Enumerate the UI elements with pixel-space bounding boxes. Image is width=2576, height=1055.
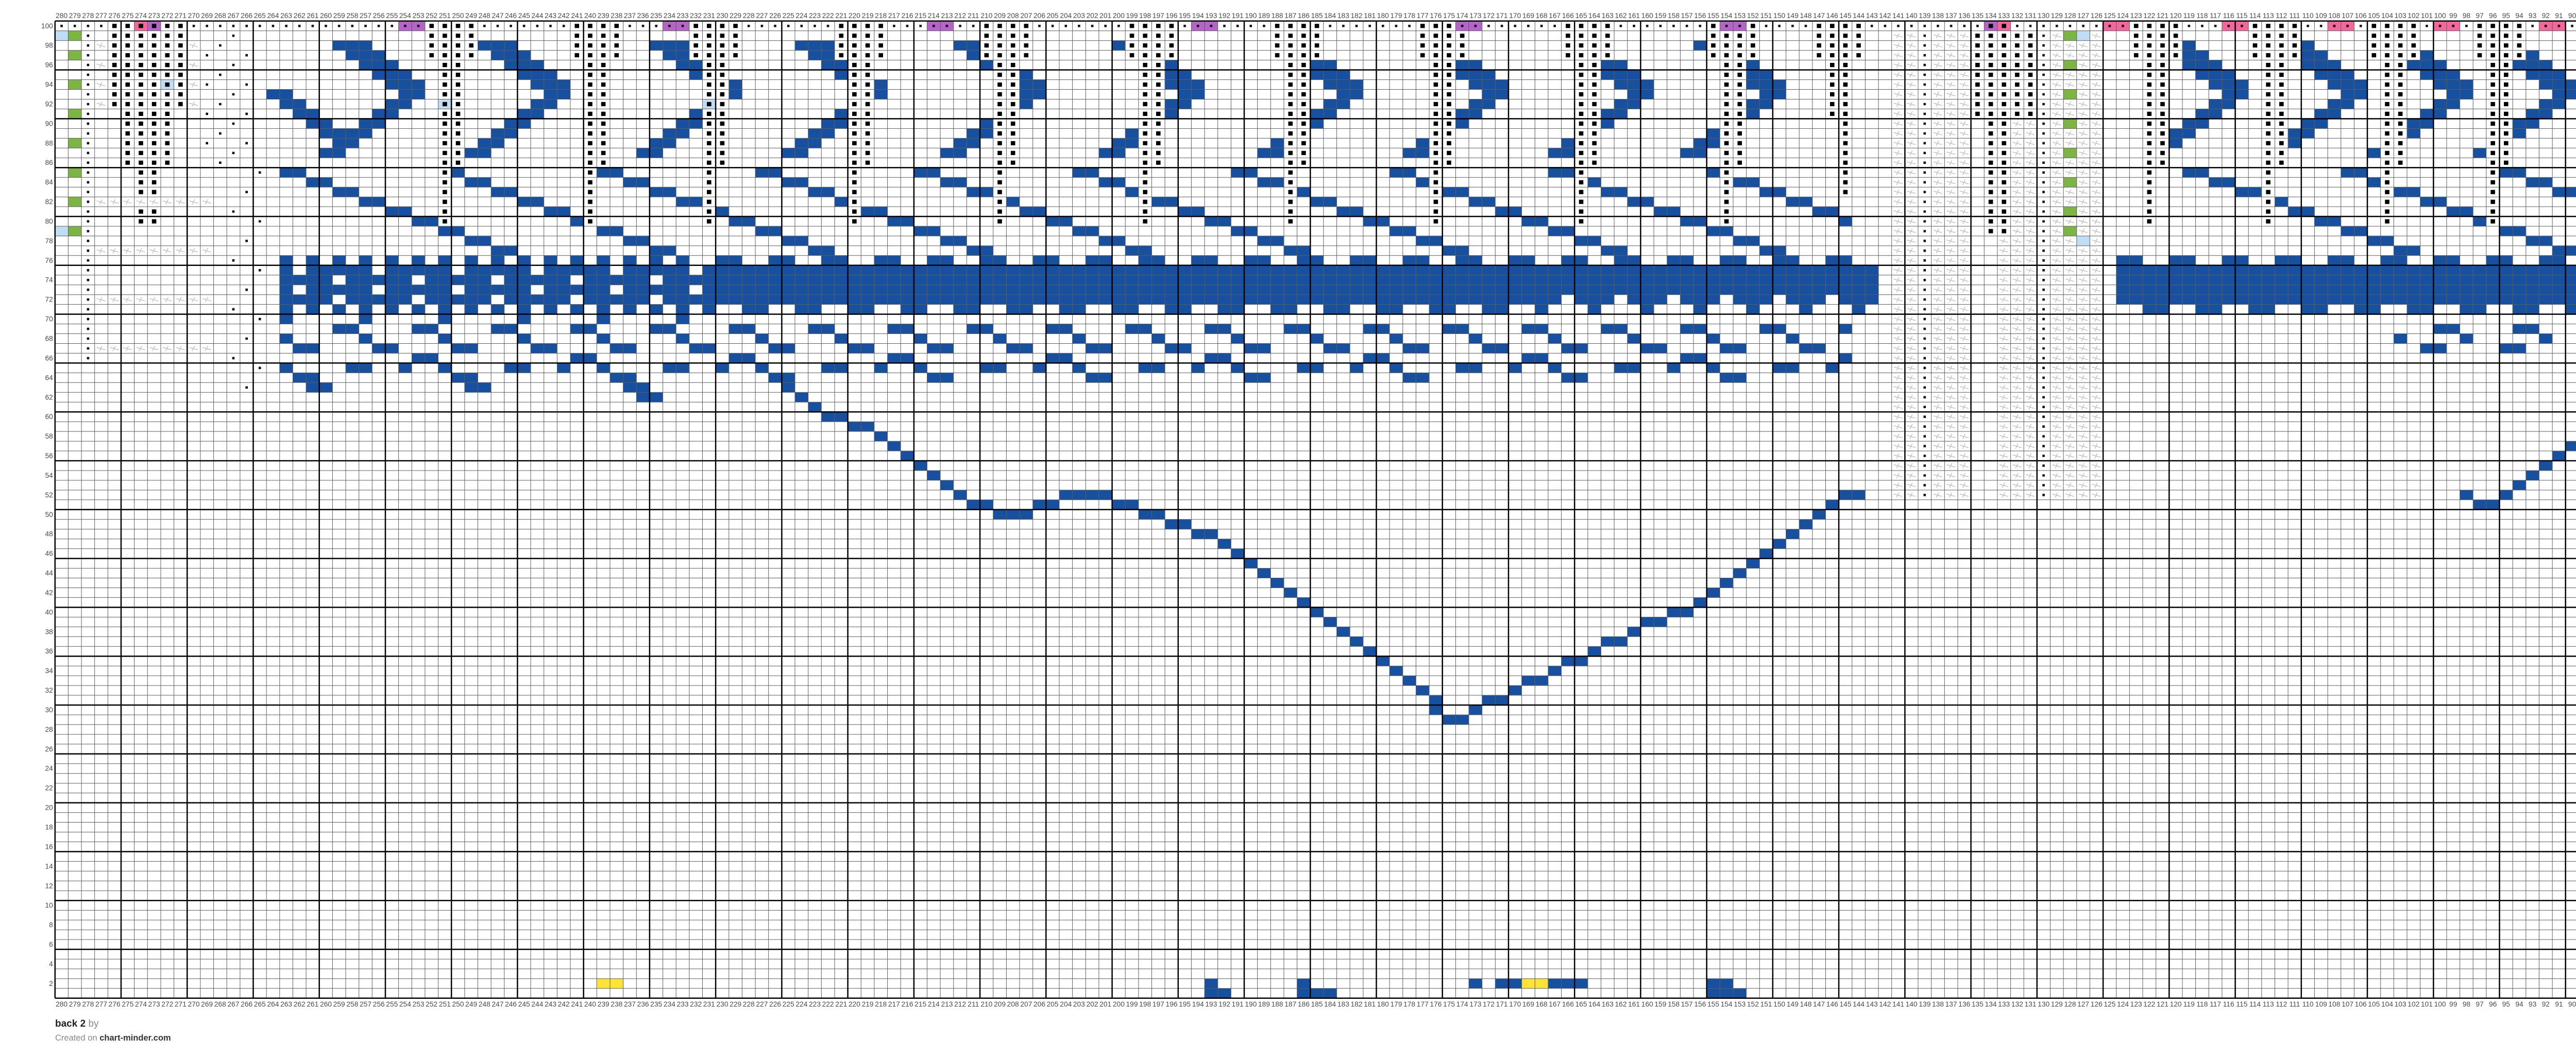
svg-text:137: 137 [1945,1000,1957,1008]
svg-text:278: 278 [82,12,94,20]
svg-text:40: 40 [45,608,53,616]
svg-text:270: 270 [188,12,200,20]
svg-text:103: 103 [2395,1000,2406,1008]
svg-text:250: 250 [452,12,464,20]
svg-text:165: 165 [1575,12,1587,20]
svg-text:241: 241 [571,12,583,20]
svg-text:280: 280 [56,1000,67,1008]
svg-text:158: 158 [1668,1000,1680,1008]
svg-text:44: 44 [45,570,53,577]
svg-text:110: 110 [2302,12,2314,20]
svg-text:173: 173 [1469,1000,1481,1008]
svg-text:200: 200 [1113,12,1125,20]
svg-text:60: 60 [45,413,53,421]
svg-text:189: 189 [1258,1000,1270,1008]
svg-text:84: 84 [45,178,53,186]
svg-text:216: 216 [901,1000,913,1008]
svg-text:221: 221 [835,12,847,20]
svg-text:76: 76 [45,257,53,264]
svg-text:175: 175 [1443,12,1455,20]
svg-text:269: 269 [201,12,213,20]
svg-text:253: 253 [413,12,425,20]
svg-text:149: 149 [1787,1000,1799,1008]
svg-text:92: 92 [2542,1000,2550,1008]
svg-text:144: 144 [1853,12,1865,20]
svg-text:188: 188 [1272,12,1283,20]
svg-text:12: 12 [45,882,53,890]
svg-text:184: 184 [1324,1000,1336,1008]
svg-text:156: 156 [1694,1000,1706,1008]
svg-text:220: 220 [849,12,860,20]
svg-text:104: 104 [2381,12,2393,20]
svg-text:274: 274 [135,1000,147,1008]
svg-text:231: 231 [703,1000,715,1008]
svg-text:277: 277 [95,12,107,20]
svg-text:163: 163 [1602,12,1614,20]
svg-text:251: 251 [439,12,451,20]
svg-text:215: 215 [914,12,926,20]
svg-text:249: 249 [465,12,477,20]
svg-text:117: 117 [2210,12,2221,20]
svg-text:234: 234 [664,1000,675,1008]
svg-text:182: 182 [1350,1000,1362,1008]
svg-text:136: 136 [1958,12,1970,20]
svg-text:80: 80 [45,217,53,225]
svg-text:119: 119 [2183,12,2195,20]
svg-text:115: 115 [2236,1000,2247,1008]
svg-text:199: 199 [1126,12,1138,20]
svg-text:100: 100 [41,22,53,30]
svg-text:224: 224 [795,1000,807,1008]
svg-text:271: 271 [175,1000,187,1008]
svg-text:232: 232 [690,12,702,20]
svg-text:96: 96 [45,61,53,69]
svg-text:106: 106 [2355,12,2367,20]
svg-text:124: 124 [2117,12,2129,20]
svg-text:242: 242 [558,1000,570,1008]
svg-text:168: 168 [1536,1000,1548,1008]
svg-text:272: 272 [161,1000,173,1008]
svg-text:229: 229 [730,12,741,20]
svg-text:128: 128 [2064,12,2076,20]
svg-text:90: 90 [2568,1000,2576,1008]
svg-text:162: 162 [1615,12,1626,20]
svg-text:248: 248 [479,1000,490,1008]
svg-text:184: 184 [1324,12,1336,20]
svg-text:134: 134 [1985,1000,1997,1008]
svg-text:196: 196 [1165,1000,1177,1008]
svg-text:91: 91 [2555,1000,2563,1008]
svg-text:214: 214 [928,12,940,20]
svg-text:204: 204 [1060,12,1072,20]
svg-text:245: 245 [518,12,530,20]
svg-text:233: 233 [676,12,688,20]
svg-text:164: 164 [1588,12,1600,20]
svg-text:28: 28 [45,726,53,733]
svg-text:66: 66 [45,354,53,362]
svg-text:207: 207 [1020,12,1032,20]
svg-text:117: 117 [2210,1000,2221,1008]
svg-text:102: 102 [2408,12,2419,20]
svg-text:211: 211 [968,12,979,20]
svg-text:123: 123 [2130,12,2142,20]
svg-text:135: 135 [1972,1000,1984,1008]
svg-text:100: 100 [2434,12,2446,20]
svg-text:169: 169 [1522,1000,1534,1008]
svg-text:223: 223 [809,1000,821,1008]
svg-text:176: 176 [1430,12,1442,20]
svg-text:217: 217 [888,1000,900,1008]
svg-text:56: 56 [45,452,53,460]
svg-text:14: 14 [45,862,53,870]
svg-text:201: 201 [1099,1000,1111,1008]
svg-text:145: 145 [1839,1000,1851,1008]
svg-text:155: 155 [1707,1000,1719,1008]
svg-text:125: 125 [2104,12,2115,20]
svg-text:194: 194 [1192,12,1204,20]
svg-text:141: 141 [1892,12,1904,20]
svg-text:228: 228 [743,12,755,20]
svg-text:122: 122 [2143,1000,2155,1008]
svg-text:266: 266 [241,1000,252,1008]
svg-text:183: 183 [1337,12,1349,20]
svg-text:141: 141 [1892,1000,1904,1008]
svg-text:162: 162 [1615,1000,1626,1008]
svg-text:254: 254 [399,1000,411,1008]
svg-text:146: 146 [1826,12,1838,20]
svg-text:132: 132 [2011,12,2023,20]
svg-text:202: 202 [1087,1000,1098,1008]
svg-text:156: 156 [1694,12,1706,20]
svg-text:64: 64 [45,374,53,381]
svg-text:226: 226 [769,1000,781,1008]
svg-text:185: 185 [1311,1000,1323,1008]
svg-text:128: 128 [2064,1000,2076,1008]
svg-text:92: 92 [45,101,53,108]
svg-text:124: 124 [2117,1000,2129,1008]
svg-text:101: 101 [2421,12,2433,20]
svg-text:216: 216 [901,12,913,20]
svg-text:88: 88 [45,139,53,147]
svg-text:212: 212 [954,1000,966,1008]
svg-text:198: 198 [1139,12,1151,20]
svg-text:268: 268 [214,1000,226,1008]
svg-text:163: 163 [1602,1000,1614,1008]
svg-text:139: 139 [1919,12,1930,20]
svg-text:243: 243 [545,12,556,20]
svg-text:275: 275 [122,12,133,20]
svg-text:103: 103 [2395,12,2406,20]
svg-text:192: 192 [1218,12,1230,20]
svg-text:107: 107 [2342,12,2353,20]
svg-text:186: 186 [1298,1000,1310,1008]
svg-text:138: 138 [1932,1000,1944,1008]
svg-text:209: 209 [994,12,1006,20]
svg-text:208: 208 [1007,12,1019,20]
svg-text:228: 228 [743,1000,755,1008]
svg-text:263: 263 [280,12,292,20]
svg-text:187: 187 [1284,12,1296,20]
svg-text:215: 215 [914,1000,926,1008]
svg-text:213: 213 [941,1000,953,1008]
svg-text:259: 259 [333,1000,345,1008]
svg-text:236: 236 [637,12,649,20]
svg-text:159: 159 [1654,12,1666,20]
svg-text:253: 253 [413,1000,425,1008]
svg-text:188: 188 [1272,1000,1283,1008]
svg-text:257: 257 [360,12,371,20]
svg-text:218: 218 [875,1000,887,1008]
svg-text:158: 158 [1668,12,1680,20]
svg-text:139: 139 [1919,1000,1930,1008]
svg-text:96: 96 [2489,1000,2497,1008]
svg-text:153: 153 [1734,12,1745,20]
svg-text:108: 108 [2328,12,2340,20]
svg-text:166: 166 [1562,1000,1574,1008]
svg-text:191: 191 [1232,1000,1244,1008]
svg-text:30: 30 [45,706,53,714]
svg-text:46: 46 [45,550,53,558]
svg-text:142: 142 [1879,1000,1891,1008]
svg-text:143: 143 [1866,12,1878,20]
svg-text:195: 195 [1179,1000,1191,1008]
svg-text:161: 161 [1628,1000,1640,1008]
svg-text:151: 151 [1760,12,1772,20]
svg-text:230: 230 [716,1000,728,1008]
svg-text:243: 243 [545,1000,556,1008]
svg-text:185: 185 [1311,12,1323,20]
svg-text:252: 252 [426,12,437,20]
svg-text:276: 276 [109,12,121,20]
svg-text:118: 118 [2196,12,2208,20]
svg-text:258: 258 [346,1000,358,1008]
svg-text:226: 226 [769,12,781,20]
svg-text:153: 153 [1734,1000,1745,1008]
svg-text:171: 171 [1496,12,1508,20]
svg-text:208: 208 [1007,1000,1019,1008]
svg-text:225: 225 [783,12,794,20]
svg-text:219: 219 [862,12,874,20]
svg-text:240: 240 [584,1000,596,1008]
svg-text:255: 255 [386,1000,398,1008]
svg-text:133: 133 [1998,12,2010,20]
svg-text:197: 197 [1153,12,1164,20]
svg-text:223: 223 [809,12,821,20]
svg-text:212: 212 [954,12,966,20]
svg-text:115: 115 [2236,12,2247,20]
svg-text:160: 160 [1641,1000,1653,1008]
svg-text:252: 252 [426,1000,437,1008]
svg-text:116: 116 [2223,12,2234,20]
svg-text:239: 239 [598,12,609,20]
svg-text:151: 151 [1760,1000,1772,1008]
svg-text:214: 214 [928,1000,940,1008]
svg-text:149: 149 [1787,12,1799,20]
svg-text:130: 130 [2038,12,2049,20]
svg-text:105: 105 [2368,12,2380,20]
svg-text:42: 42 [45,589,53,597]
svg-text:222: 222 [822,12,834,20]
svg-text:144: 144 [1853,1000,1865,1008]
svg-text:132: 132 [2011,1000,2023,1008]
svg-text:189: 189 [1258,12,1270,20]
svg-text:256: 256 [373,12,385,20]
svg-text:235: 235 [650,1000,662,1008]
svg-text:238: 238 [611,1000,622,1008]
svg-text:161: 161 [1628,12,1640,20]
svg-text:126: 126 [2091,12,2103,20]
svg-text:97: 97 [2476,1000,2483,1008]
svg-text:186: 186 [1298,12,1310,20]
svg-text:231: 231 [703,12,715,20]
svg-text:201: 201 [1099,12,1111,20]
svg-text:180: 180 [1377,12,1389,20]
svg-text:247: 247 [492,1000,503,1008]
svg-text:129: 129 [2051,1000,2063,1008]
svg-text:6: 6 [49,941,53,948]
svg-text:268: 268 [214,12,226,20]
svg-text:32: 32 [45,686,53,694]
svg-text:140: 140 [1906,1000,1918,1008]
svg-text:54: 54 [45,472,53,479]
svg-text:back 2 by: back 2 by [55,1018,99,1029]
svg-text:203: 203 [1073,12,1085,20]
svg-text:203: 203 [1073,1000,1085,1008]
svg-text:193: 193 [1205,1000,1217,1008]
svg-text:122: 122 [2143,12,2155,20]
svg-text:255: 255 [386,12,398,20]
svg-text:93: 93 [2529,1000,2537,1008]
svg-text:261: 261 [307,12,318,20]
svg-text:237: 237 [624,1000,636,1008]
svg-text:265: 265 [254,1000,266,1008]
svg-text:159: 159 [1654,1000,1666,1008]
svg-text:264: 264 [267,12,279,20]
svg-text:152: 152 [1747,1000,1759,1008]
svg-text:157: 157 [1681,1000,1693,1008]
svg-text:230: 230 [716,12,728,20]
svg-text:237: 237 [624,12,636,20]
svg-text:108: 108 [2328,1000,2340,1008]
svg-text:90: 90 [2568,12,2576,20]
svg-text:236: 236 [637,1000,649,1008]
svg-text:34: 34 [45,667,53,675]
svg-text:2: 2 [49,980,53,987]
svg-text:250: 250 [452,1000,464,1008]
svg-text:178: 178 [1403,1000,1415,1008]
svg-text:190: 190 [1245,1000,1257,1008]
svg-text:172: 172 [1483,12,1495,20]
svg-text:111: 111 [2290,12,2300,20]
svg-text:181: 181 [1364,12,1376,20]
svg-text:210: 210 [980,12,992,20]
svg-text:95: 95 [2502,1000,2511,1008]
svg-text:261: 261 [307,1000,318,1008]
svg-text:82: 82 [45,198,53,206]
svg-text:205: 205 [1047,12,1059,20]
svg-text:105: 105 [2368,1000,2380,1008]
svg-text:170: 170 [1509,1000,1521,1008]
svg-text:121: 121 [2157,12,2168,20]
svg-text:137: 137 [1945,12,1957,20]
svg-text:123: 123 [2130,1000,2142,1008]
svg-text:275: 275 [122,1000,133,1008]
svg-text:78: 78 [45,237,53,245]
svg-text:94: 94 [45,81,53,89]
svg-text:72: 72 [45,296,53,304]
svg-text:224: 224 [795,12,807,20]
svg-text:254: 254 [399,12,411,20]
svg-text:192: 192 [1218,1000,1230,1008]
svg-text:93: 93 [2529,12,2537,20]
svg-text:187: 187 [1284,1000,1296,1008]
svg-text:276: 276 [109,1000,121,1008]
svg-text:165: 165 [1575,1000,1587,1008]
svg-text:256: 256 [373,1000,385,1008]
svg-text:196: 196 [1165,12,1177,20]
svg-text:194: 194 [1192,1000,1204,1008]
svg-text:198: 198 [1139,1000,1151,1008]
svg-text:143: 143 [1866,1000,1878,1008]
svg-text:274: 274 [135,12,147,20]
svg-text:172: 172 [1483,1000,1495,1008]
svg-text:99: 99 [2449,12,2458,20]
svg-text:148: 148 [1800,12,1811,20]
svg-text:206: 206 [1033,1000,1045,1008]
svg-text:70: 70 [45,315,53,323]
svg-text:220: 220 [849,1000,860,1008]
svg-text:38: 38 [45,628,53,635]
svg-text:166: 166 [1562,12,1574,20]
svg-text:174: 174 [1456,12,1468,20]
svg-text:269: 269 [201,1000,213,1008]
svg-text:209: 209 [994,1000,1006,1008]
svg-text:58: 58 [45,432,53,440]
svg-text:112: 112 [2276,1000,2287,1008]
svg-text:218: 218 [875,12,887,20]
svg-text:131: 131 [2024,1000,2036,1008]
svg-text:120: 120 [2170,12,2182,20]
svg-text:178: 178 [1403,12,1415,20]
svg-text:273: 273 [148,12,160,20]
svg-text:107: 107 [2342,1000,2353,1008]
svg-text:190: 190 [1245,12,1257,20]
svg-text:213: 213 [941,12,953,20]
svg-text:148: 148 [1800,1000,1811,1008]
svg-text:229: 229 [730,1000,741,1008]
svg-text:134: 134 [1985,12,1997,20]
svg-text:111: 111 [2290,1000,2300,1008]
svg-text:91: 91 [2555,12,2563,20]
svg-text:109: 109 [2315,12,2327,20]
svg-text:4: 4 [49,960,53,968]
svg-text:113: 113 [2263,1000,2274,1008]
svg-text:221: 221 [835,1000,847,1008]
svg-text:179: 179 [1390,1000,1402,1008]
svg-text:142: 142 [1879,12,1891,20]
svg-text:278: 278 [82,1000,94,1008]
svg-text:125: 125 [2104,1000,2115,1008]
svg-text:129: 129 [2051,12,2063,20]
svg-text:121: 121 [2157,1000,2168,1008]
svg-text:114: 114 [2249,1000,2261,1008]
svg-text:235: 235 [650,12,662,20]
svg-text:182: 182 [1350,12,1362,20]
svg-text:171: 171 [1496,1000,1508,1008]
svg-text:168: 168 [1536,12,1548,20]
svg-text:258: 258 [346,12,358,20]
svg-text:10: 10 [45,901,53,909]
